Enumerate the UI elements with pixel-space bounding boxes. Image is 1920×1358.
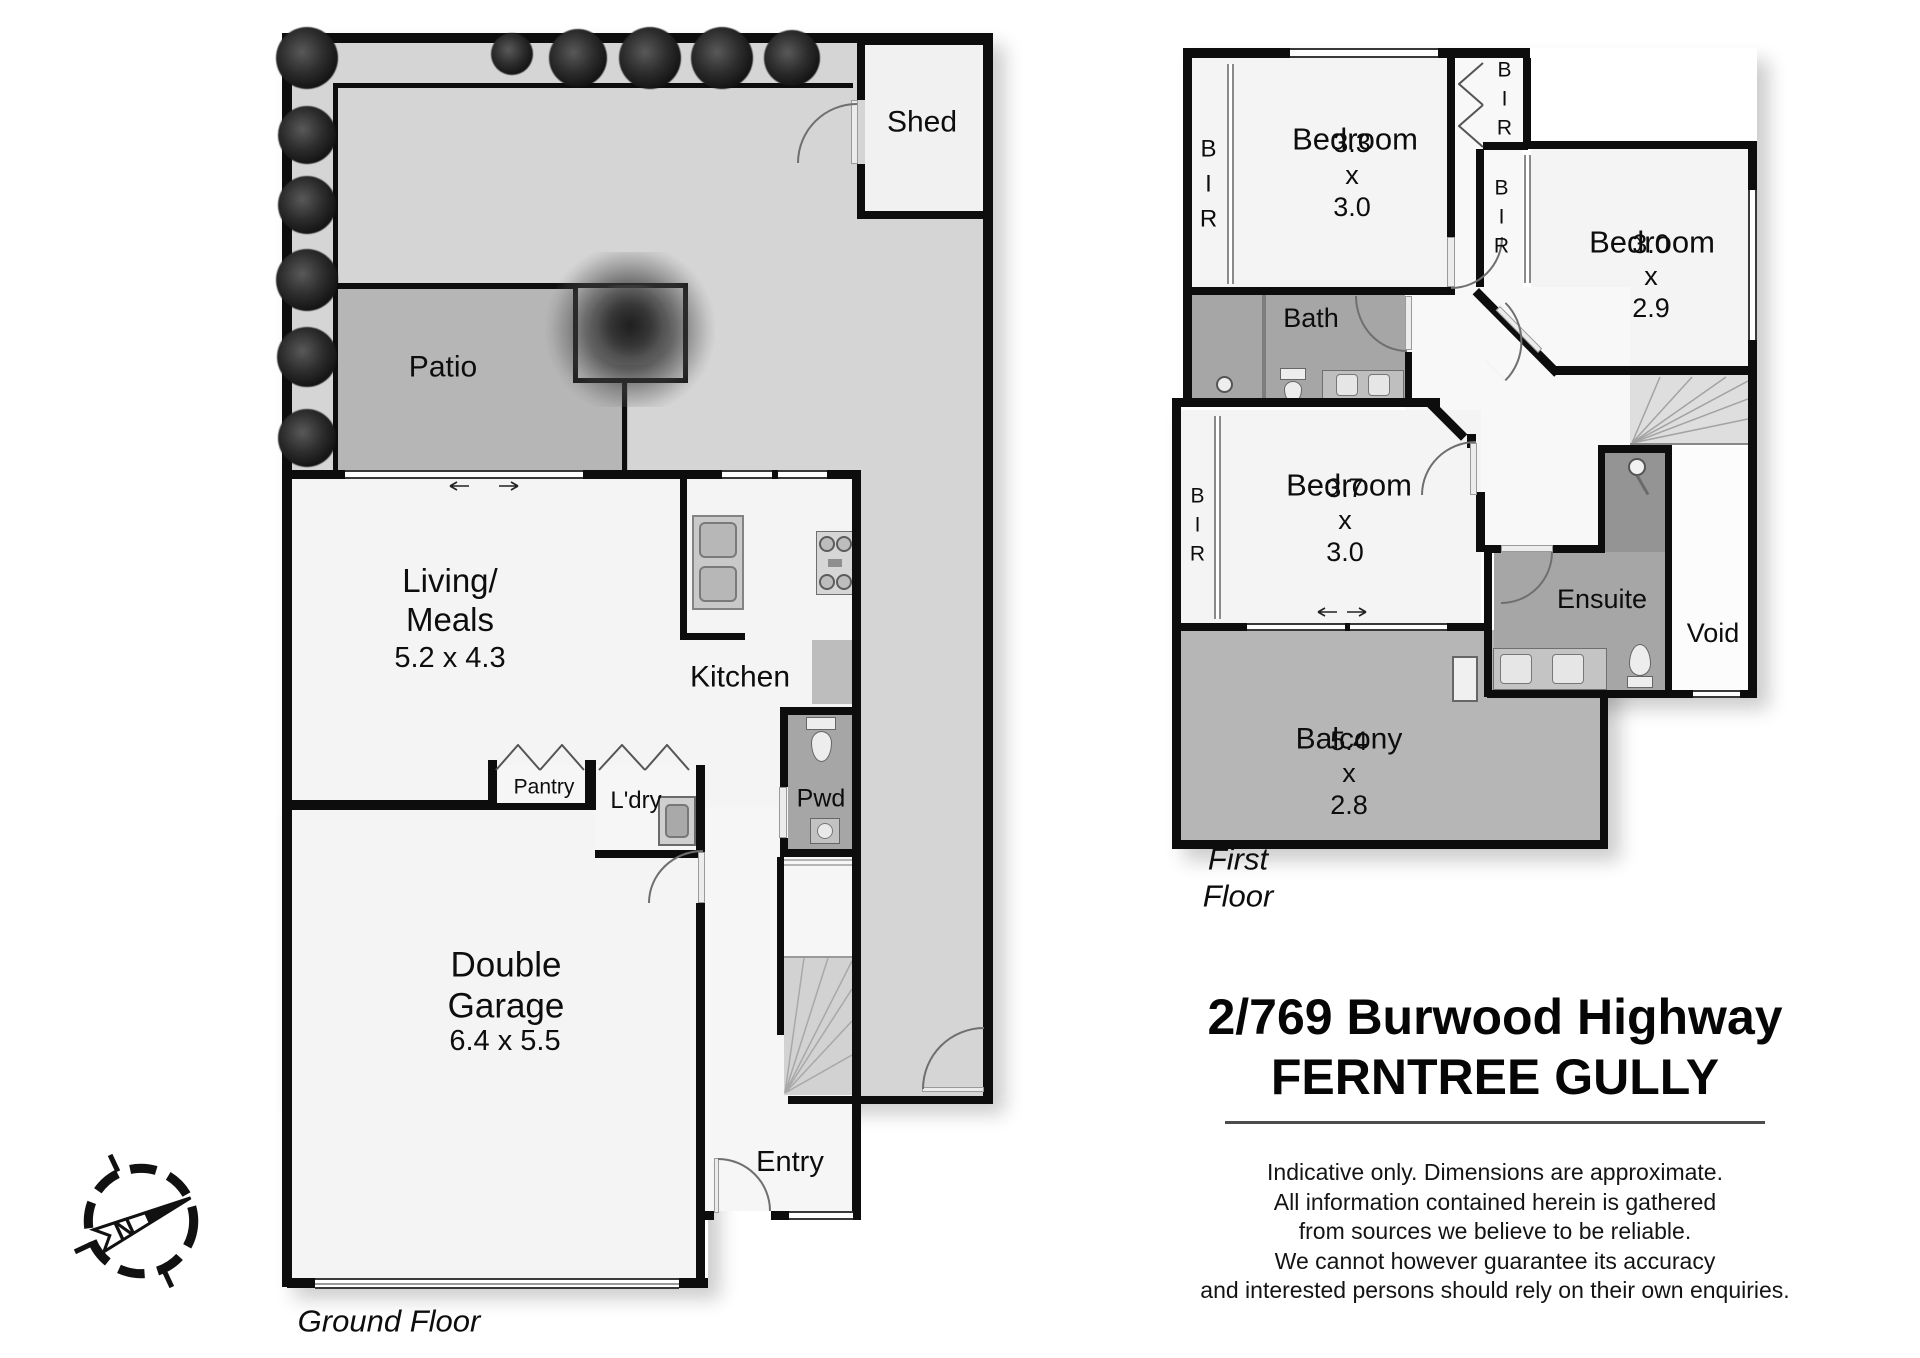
- sliding-robe-door: [1214, 416, 1221, 619]
- window: [1247, 623, 1345, 631]
- wall: [1598, 445, 1605, 552]
- room-label-entry: Entry: [756, 1145, 824, 1179]
- wall: [1523, 58, 1531, 149]
- room-dims-bedroom3: 3.7 x 3.0: [1326, 473, 1364, 569]
- wall: [853, 1211, 861, 1220]
- wall: [1405, 352, 1412, 398]
- wall: [1484, 545, 1492, 697]
- sink-icon: [1336, 374, 1358, 396]
- garage-door: [315, 1278, 679, 1289]
- compass-icon: N: [66, 1146, 216, 1296]
- floorplan-page: Shed Patio Living/ Meals 5.2 x 4.3 Kitch…: [0, 0, 1920, 1358]
- bifold-door-icon: [1458, 62, 1484, 148]
- door-leaf: [1501, 545, 1553, 552]
- window: [1290, 48, 1438, 58]
- room-dims-bedroom2: 3.0 x 2.9: [1632, 229, 1670, 325]
- wall: [983, 33, 993, 1104]
- room-label-ensuite: Ensuite: [1557, 584, 1647, 616]
- sliding-robe-door: [1524, 155, 1531, 283]
- wall: [771, 1211, 789, 1220]
- sink-icon: [1500, 654, 1532, 684]
- title-divider: [1225, 1121, 1765, 1124]
- room-label-bath: Bath: [1283, 303, 1339, 335]
- shower-head-icon: [1216, 376, 1233, 393]
- room-dims-garage: 6.4 x 5.5: [449, 1024, 560, 1058]
- floor-caption-ground: Ground Floor: [298, 1304, 481, 1341]
- toilet-cistern-icon: [1627, 676, 1653, 688]
- wall: [1183, 48, 1192, 405]
- room-label-void: Void: [1687, 618, 1740, 650]
- toilet-cistern-icon: [1280, 368, 1306, 380]
- robe-label-bir1: BIR: [1194, 136, 1222, 241]
- floor-caption-first: First Floor: [1203, 841, 1274, 914]
- address-line2: FERNTREE GULLY: [1100, 1048, 1890, 1106]
- hall-landing: [1481, 406, 1598, 545]
- robe-label-bir3: BIR: [1489, 177, 1513, 264]
- title-block: 2/769 Burwood Highway FERNTREE GULLY Ind…: [1100, 980, 1890, 1340]
- stairs-icon: [1630, 375, 1748, 445]
- slide-arrow-right-icon: [1346, 606, 1370, 618]
- wall: [700, 1211, 714, 1220]
- room-dims-balcony: 5.4 x 2.8: [1330, 726, 1368, 822]
- wall: [1447, 58, 1455, 237]
- wall: [1183, 287, 1455, 295]
- wall: [1600, 697, 1608, 849]
- window: [1350, 623, 1447, 631]
- shower-head-icon: [1628, 458, 1646, 476]
- first-floor-plan: BIR Bedroom 3.3 x 3.0 BIR BIR Bedroom 3.…: [0, 0, 900, 960]
- shower-screen: [1262, 295, 1266, 399]
- wall: [1555, 366, 1757, 375]
- ac-unit-icon: [1452, 656, 1478, 702]
- address-line1: 2/769 Burwood Highway: [1100, 988, 1890, 1046]
- wall: [788, 1096, 993, 1104]
- wall: [1172, 398, 1440, 407]
- window: [789, 1211, 853, 1220]
- window: [1748, 190, 1757, 340]
- slide-arrow-left-icon: [1314, 606, 1338, 618]
- wall: [1665, 447, 1672, 690]
- disclaimer-text: Indicative only. Dimensions are approxim…: [1145, 1158, 1845, 1306]
- wall: [1598, 445, 1672, 453]
- sliding-robe-door: [1227, 64, 1234, 284]
- robe-label-bir2: BIR: [1492, 59, 1516, 146]
- robe-label-bir4: BIR: [1185, 485, 1209, 572]
- sink-icon: [1552, 654, 1584, 684]
- window: [1693, 690, 1740, 698]
- wall: [1476, 492, 1485, 552]
- wall: [696, 903, 705, 1287]
- room-dims-bedroom1: 3.3 x 3.0: [1333, 128, 1371, 224]
- toilet-bowl-icon: [1629, 644, 1651, 676]
- vanity-icon: [1322, 370, 1404, 400]
- sink-icon: [1368, 374, 1390, 396]
- void-space: [1672, 447, 1748, 690]
- wall: [1523, 141, 1757, 149]
